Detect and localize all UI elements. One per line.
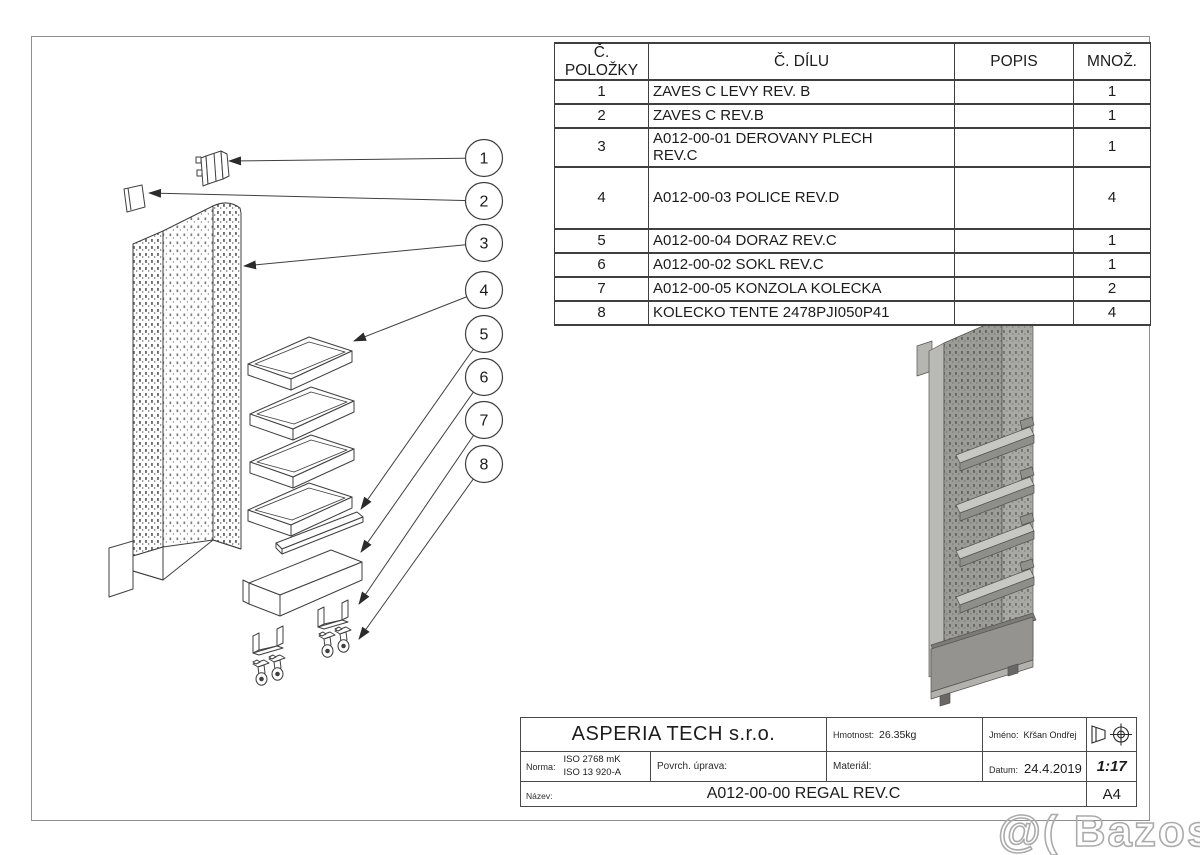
bom-popis — [955, 80, 1074, 104]
date-value: 24.4.2019 — [1024, 761, 1082, 776]
svg-text:8: 8 — [480, 457, 489, 474]
norma-cell: Norma: ISO 2768 mK ISO 13 920-A — [521, 752, 651, 782]
balloon-3: 3 — [466, 225, 503, 262]
balloon-2: 2 — [466, 183, 503, 220]
bom-part-name: KOLECKO TENTE 2478PJI050P41 — [649, 301, 955, 325]
balloon-1: 1 — [466, 140, 503, 177]
bom-popis — [955, 277, 1074, 301]
table-row: 3 A012-00-01 DEROVANY PLECH REV.C 1 — [555, 128, 1151, 167]
svg-text:7: 7 — [480, 413, 489, 430]
bom-header-part: Č. DÍLU — [649, 43, 955, 80]
bom-part-name: A012-00-04 DORAZ REV.C — [649, 229, 955, 253]
side-plate-part — [124, 185, 145, 212]
surface-cell: Povrch. úprava: — [651, 752, 827, 782]
drawing-title: A012-00-00 REGAL REV.C — [707, 785, 901, 803]
company-name: ASPERIA TECH s.r.o. — [521, 718, 827, 752]
table-row: 8 KOLECKO TENTE 2478PJI050P41 4 — [555, 301, 1151, 325]
first-angle-projection-icon — [1090, 723, 1134, 747]
bom-item-no: 5 — [555, 229, 649, 253]
weight-value: 26.35kg — [879, 729, 916, 741]
table-row: 6 A012-00-02 SOKL REV.C 1 — [555, 253, 1151, 277]
paper-size: A4 — [1087, 782, 1137, 807]
weight-cell: Hmotnost: 26.35kg — [827, 718, 983, 752]
author-cell: Jméno: Křšan Ondřej — [983, 718, 1087, 752]
bom-part-name: ZAVES C REV.B — [649, 104, 955, 128]
bom-qty: 1 — [1074, 229, 1151, 253]
balloon-4: 4 — [466, 272, 503, 309]
item-balloons: 1 2 3 4 5 6 7 8 — [466, 140, 503, 483]
svg-text:2: 2 — [480, 194, 489, 211]
bom-item-no: 8 — [555, 301, 649, 325]
table-row: 2 ZAVES C REV.B 1 — [555, 104, 1151, 128]
perforated-panel-part — [109, 203, 241, 597]
bom-header-item: Č. POLOŽKY — [555, 43, 649, 80]
svg-text:5: 5 — [480, 327, 489, 344]
assembled-view — [917, 313, 1036, 706]
bom-item-no: 2 — [555, 104, 649, 128]
table-row: 4 A012-00-03 POLICE REV.D 4 — [555, 167, 1151, 229]
bom-qty: 4 — [1074, 301, 1151, 325]
bom-part-name: A012-00-03 POLICE REV.D — [649, 167, 955, 229]
balloon-8: 8 — [466, 446, 503, 483]
bom-qty: 1 — [1074, 253, 1151, 277]
bom-part-name: A012-00-01 DEROVANY PLECH REV.C — [649, 128, 955, 167]
bom-item-no: 7 — [555, 277, 649, 301]
balloon-7: 7 — [466, 402, 503, 439]
bom-part-name: A012-00-02 SOKL REV.C — [649, 253, 955, 277]
material-cell: Materiál: — [827, 752, 983, 782]
table-row: 5 A012-00-04 DORAZ REV.C 1 — [555, 229, 1151, 253]
bom-item-no: 4 — [555, 167, 649, 229]
table-row: 1 ZAVES C LEVY REV. B 1 — [555, 80, 1151, 104]
engineering-drawing-page: { "colors": { "line": "#3f3f3f", "frame"… — [0, 0, 1200, 855]
svg-text:3: 3 — [480, 236, 489, 253]
norma-value-2: ISO 13 920-A — [564, 767, 622, 780]
author-value: Křšan Ondřej — [1024, 730, 1077, 740]
bom-qty: 1 — [1074, 128, 1151, 167]
hinge-bracket-part — [196, 151, 229, 186]
bom-header-popis: POPIS — [955, 43, 1074, 80]
author-label: Jméno: — [989, 730, 1019, 740]
drawing-title-cell: Název: A012-00-00 REGAL REV.C — [521, 782, 1087, 807]
bom-popis — [955, 301, 1074, 325]
bom-header-qty: MNOŽ. — [1074, 43, 1151, 80]
svg-text:6: 6 — [480, 370, 489, 387]
title-block: ASPERIA TECH s.r.o. Hmotnost: 26.35kg Jm… — [520, 717, 1137, 807]
bom-part-name: A012-00-05 KONZOLA KOLECKA — [649, 277, 955, 301]
bom-qty: 1 — [1074, 104, 1151, 128]
exploded-view: 1 2 3 4 5 6 7 8 — [109, 140, 503, 686]
svg-text:4: 4 — [480, 283, 489, 300]
date-cell: Datum: 24.4.2019 — [983, 752, 1087, 782]
surface-label: Povrch. úprava: — [657, 761, 727, 772]
bom-popis — [955, 253, 1074, 277]
bom-item-no: 6 — [555, 253, 649, 277]
scale-value: 1:17 — [1087, 752, 1137, 782]
bom-item-no: 1 — [555, 80, 649, 104]
bom-item-no: 3 — [555, 128, 649, 167]
bom-part-name: ZAVES C LEVY REV. B — [649, 80, 955, 104]
table-row: 7 A012-00-05 KONZOLA KOLECKA 2 — [555, 277, 1151, 301]
balloon-6: 6 — [466, 359, 503, 396]
bom-popis — [955, 104, 1074, 128]
bom-qty: 4 — [1074, 167, 1151, 229]
weight-label: Hmotnost: — [833, 730, 874, 740]
title-label: Název: — [526, 791, 552, 801]
bom-qty: 1 — [1074, 80, 1151, 104]
material-label: Materiál: — [833, 761, 871, 772]
bom-popis — [955, 167, 1074, 229]
date-label: Datum: — [989, 765, 1018, 775]
norma-label: Norma: — [526, 762, 556, 772]
bom-popis — [955, 229, 1074, 253]
bill-of-materials-table: Č. POLOŽKY Č. DÍLU POPIS MNOŽ. 1 ZAVES C… — [554, 42, 1150, 326]
bom-qty: 2 — [1074, 277, 1151, 301]
watermark-text: @( Bazos.cz — [998, 807, 1200, 855]
balloon-5: 5 — [466, 316, 503, 353]
norma-value-1: ISO 2768 mK — [564, 754, 622, 767]
projection-symbol-cell — [1087, 718, 1137, 752]
bom-header-row: Č. POLOŽKY Č. DÍLU POPIS MNOŽ. — [555, 43, 1151, 80]
svg-text:1: 1 — [480, 151, 489, 168]
bom-popis — [955, 128, 1074, 167]
